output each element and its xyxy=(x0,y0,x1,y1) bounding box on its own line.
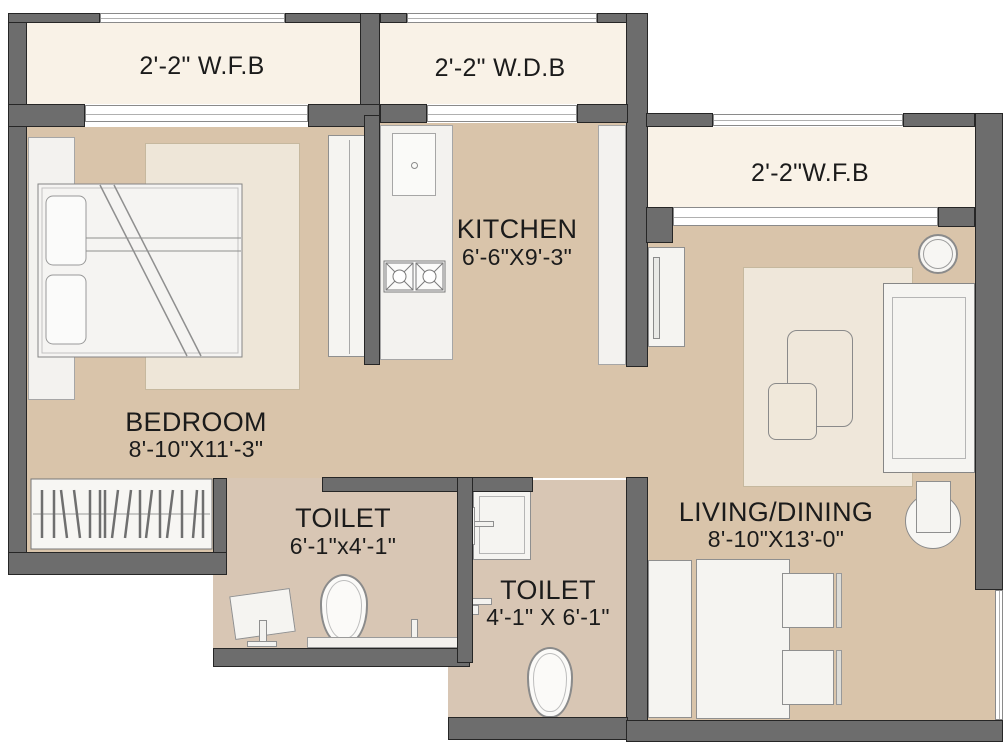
wc-rim xyxy=(326,580,362,639)
stove-icon xyxy=(383,260,446,293)
window xyxy=(407,13,597,23)
wall xyxy=(8,104,85,127)
floor-plan: 2'-2" W.F.B 2'-2" W.D.B 2'-2"W.F.B BEDRO… xyxy=(0,0,1007,750)
wall xyxy=(626,13,648,367)
bedroom-label: BEDROOM xyxy=(125,408,267,436)
tv-screen xyxy=(653,257,660,339)
toilet1-dims: 6'-1"x4'-1" xyxy=(290,534,396,558)
wall xyxy=(903,113,975,127)
dining-chair-icon xyxy=(782,650,834,705)
tv-unit-icon xyxy=(648,247,685,347)
wall xyxy=(380,104,427,123)
wall xyxy=(975,113,1003,590)
wall xyxy=(322,477,533,492)
balcony-top-left-label: 2'-2" W.F.B xyxy=(139,53,264,79)
wardrobe-door-line xyxy=(349,140,350,354)
shower-ledge xyxy=(307,637,458,648)
wall xyxy=(213,648,470,667)
bedroom-dims: 8'-10"X11'-3" xyxy=(129,437,264,461)
balcony-top-mid-label: 2'-2" W.D.B xyxy=(435,55,566,81)
window xyxy=(427,105,577,122)
living-dining-label: LIVING/DINING xyxy=(679,498,873,526)
wall xyxy=(457,477,473,663)
wardrobe-icon xyxy=(328,135,366,357)
wall xyxy=(626,720,1003,742)
kitchen-dims: 6'-6"X9'-3" xyxy=(462,245,572,269)
window xyxy=(995,590,1003,720)
wc-rim xyxy=(533,653,567,712)
planter-icon xyxy=(918,234,958,274)
washbasin-base xyxy=(247,641,277,647)
living-dining-dims: 8'-10"X13'-0" xyxy=(708,527,844,551)
sofa-icon xyxy=(883,283,975,473)
dining-bench-icon xyxy=(648,560,692,718)
wc-toilet-icon xyxy=(320,574,368,645)
dining-chair-back xyxy=(836,573,842,628)
double-bed-icon xyxy=(37,183,243,358)
wc-toilet-icon xyxy=(527,647,573,718)
balcony-right-label: 2'-2"W.F.B xyxy=(751,160,869,186)
window xyxy=(673,207,938,226)
window xyxy=(713,114,903,126)
wall xyxy=(360,13,380,115)
wall xyxy=(577,104,628,123)
wall xyxy=(8,13,100,23)
wall xyxy=(938,207,975,227)
toilet2-dims: 4'-1" X 6'-1" xyxy=(486,605,610,629)
planter-inner xyxy=(923,239,953,269)
side-table-icon xyxy=(768,383,817,440)
kitchen-counter-right xyxy=(598,125,626,365)
window xyxy=(100,13,285,23)
toilet1-label: TOILET xyxy=(295,504,391,532)
wall xyxy=(8,552,227,575)
kitchen-label: KITCHEN xyxy=(457,215,578,243)
wall xyxy=(380,13,407,23)
dining-chair-icon xyxy=(782,573,834,628)
wall xyxy=(364,115,380,365)
sink-drain xyxy=(411,162,418,169)
wall xyxy=(626,477,648,722)
wall xyxy=(646,113,713,127)
hanger-closet-icon xyxy=(30,478,213,550)
toilet2-label: TOILET xyxy=(500,576,596,604)
wall xyxy=(646,207,673,243)
dining-chair-back xyxy=(836,650,842,705)
sofa-cushion xyxy=(892,297,966,459)
washbasin-pedestal xyxy=(259,620,267,642)
wall xyxy=(8,13,27,575)
kitchen-sink-icon xyxy=(392,133,436,196)
dining-table-icon xyxy=(696,559,790,719)
living-floor-extension xyxy=(975,590,995,720)
wall xyxy=(448,717,628,740)
window xyxy=(85,105,308,122)
round-chair-seat xyxy=(916,481,951,533)
